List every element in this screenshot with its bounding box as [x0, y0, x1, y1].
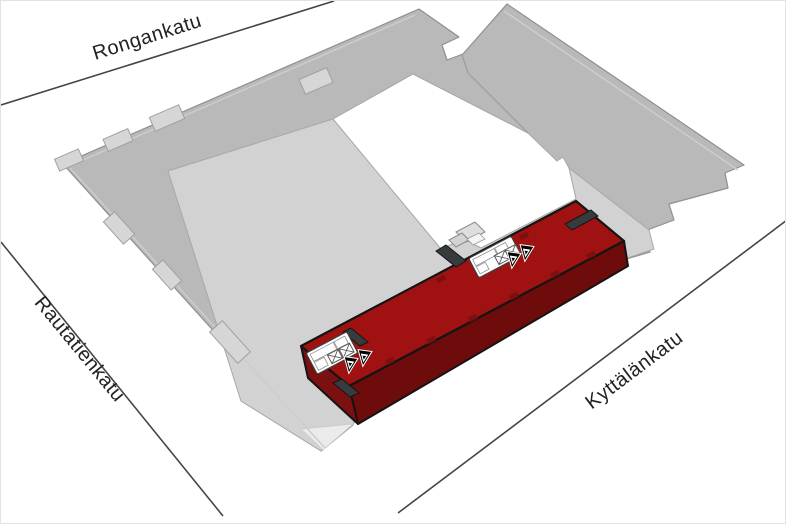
site-plan-canvas: Rongankatu Rautatienkatu Kyttälänkatu: [1, 1, 786, 524]
site-plan-figure: Rongankatu Rautatienkatu Kyttälänkatu: [0, 0, 786, 524]
street-label-kyttalankatu: Kyttälänkatu: [581, 326, 687, 413]
street-label-rongankatu: Rongankatu: [90, 10, 204, 65]
street-label-rautatienkatu: Rautatienkatu: [30, 292, 130, 406]
